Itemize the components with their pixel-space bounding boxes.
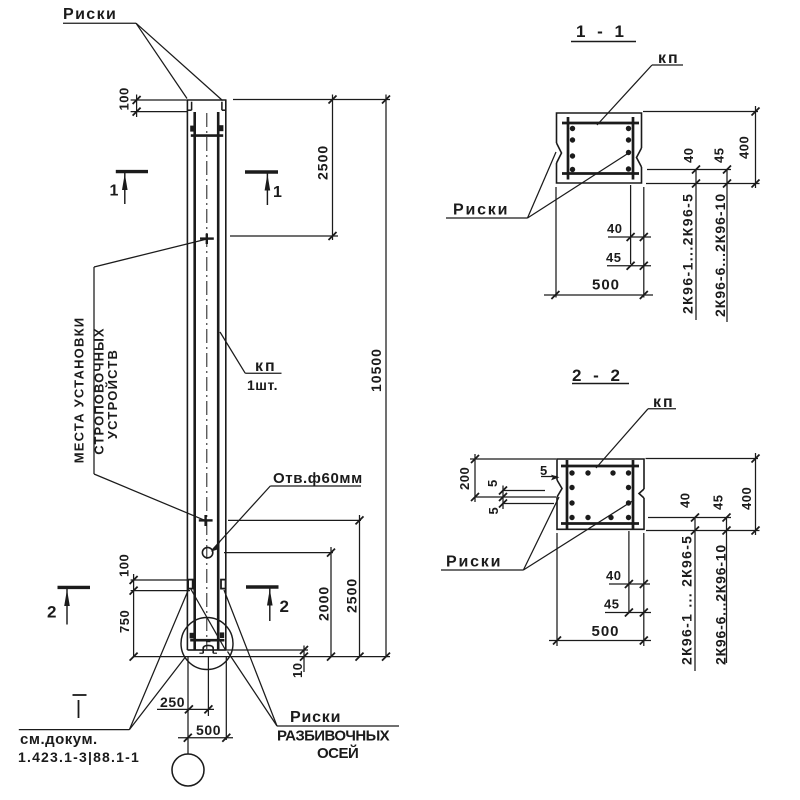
svg-text:10: 10	[290, 663, 305, 678]
svg-text:250: 250	[160, 694, 185, 710]
svg-text:40: 40	[606, 568, 621, 583]
svg-text:1: 1	[273, 184, 282, 201]
svg-text:400: 400	[737, 136, 752, 159]
svg-text:Риски: Риски	[63, 6, 117, 23]
svg-text:2 - 2: 2 - 2	[572, 366, 624, 385]
svg-text:ОСЕЙ: ОСЕЙ	[317, 744, 358, 762]
svg-text:40: 40	[681, 148, 696, 163]
svg-text:2: 2	[280, 597, 289, 616]
svg-text:100: 100	[117, 554, 132, 577]
svg-text:2К96-6...2К96-10: 2К96-6...2К96-10	[713, 544, 729, 665]
svg-text:МЕСТА УСТАНОВКИ: МЕСТА УСТАНОВКИ	[72, 317, 87, 464]
svg-text:100: 100	[117, 87, 132, 110]
svg-text:750: 750	[117, 610, 132, 633]
svg-text:2500: 2500	[315, 145, 331, 180]
svg-text:40: 40	[607, 221, 622, 236]
svg-text:40: 40	[678, 493, 693, 508]
svg-text:Риски: Риски	[290, 709, 341, 726]
svg-text:2К96-6...2К96-10: 2К96-6...2К96-10	[712, 193, 728, 317]
svg-text:45: 45	[711, 495, 726, 510]
svg-text:2500: 2500	[344, 578, 360, 613]
svg-text:Отв.ф60мм: Отв.ф60мм	[273, 470, 363, 487]
svg-text:5: 5	[485, 480, 500, 487]
svg-text:см.докум.: см.докум.	[20, 731, 98, 748]
svg-text:45: 45	[712, 148, 727, 163]
svg-text:2000: 2000	[316, 586, 332, 621]
svg-text:1: 1	[110, 183, 119, 200]
svg-text:1.423.1-3|88.1-1: 1.423.1-3|88.1-1	[18, 749, 140, 765]
svg-text:400: 400	[739, 487, 754, 510]
svg-text:Риски: Риски	[446, 554, 502, 571]
svg-text:кп: кп	[653, 394, 675, 411]
svg-text:1 - 1: 1 - 1	[576, 22, 628, 41]
svg-text:5: 5	[540, 463, 547, 478]
svg-text:Риски: Риски	[453, 202, 509, 219]
svg-text:45: 45	[606, 250, 621, 265]
svg-text:2К96-1...2К96-5: 2К96-1...2К96-5	[680, 193, 696, 314]
svg-text:500: 500	[196, 722, 221, 738]
svg-text:УСТРОЙСТВ: УСТРОЙСТВ	[105, 349, 120, 439]
svg-text:1шт.: 1шт.	[247, 377, 278, 393]
svg-text:500: 500	[592, 277, 620, 294]
svg-text:кп: кп	[255, 358, 277, 375]
svg-text:РАЗБИВОЧНЫХ: РАЗБИВОЧНЫХ	[277, 728, 390, 745]
svg-text:200: 200	[457, 467, 472, 490]
svg-text:2: 2	[47, 603, 56, 622]
svg-text:45: 45	[604, 597, 619, 612]
svg-text:10500: 10500	[368, 348, 384, 392]
svg-text:2К96-1 ... 2К96-5: 2К96-1 ... 2К96-5	[679, 535, 695, 665]
svg-text:5: 5	[486, 507, 501, 514]
svg-text:500: 500	[592, 623, 620, 640]
svg-text:кп: кп	[658, 50, 680, 67]
